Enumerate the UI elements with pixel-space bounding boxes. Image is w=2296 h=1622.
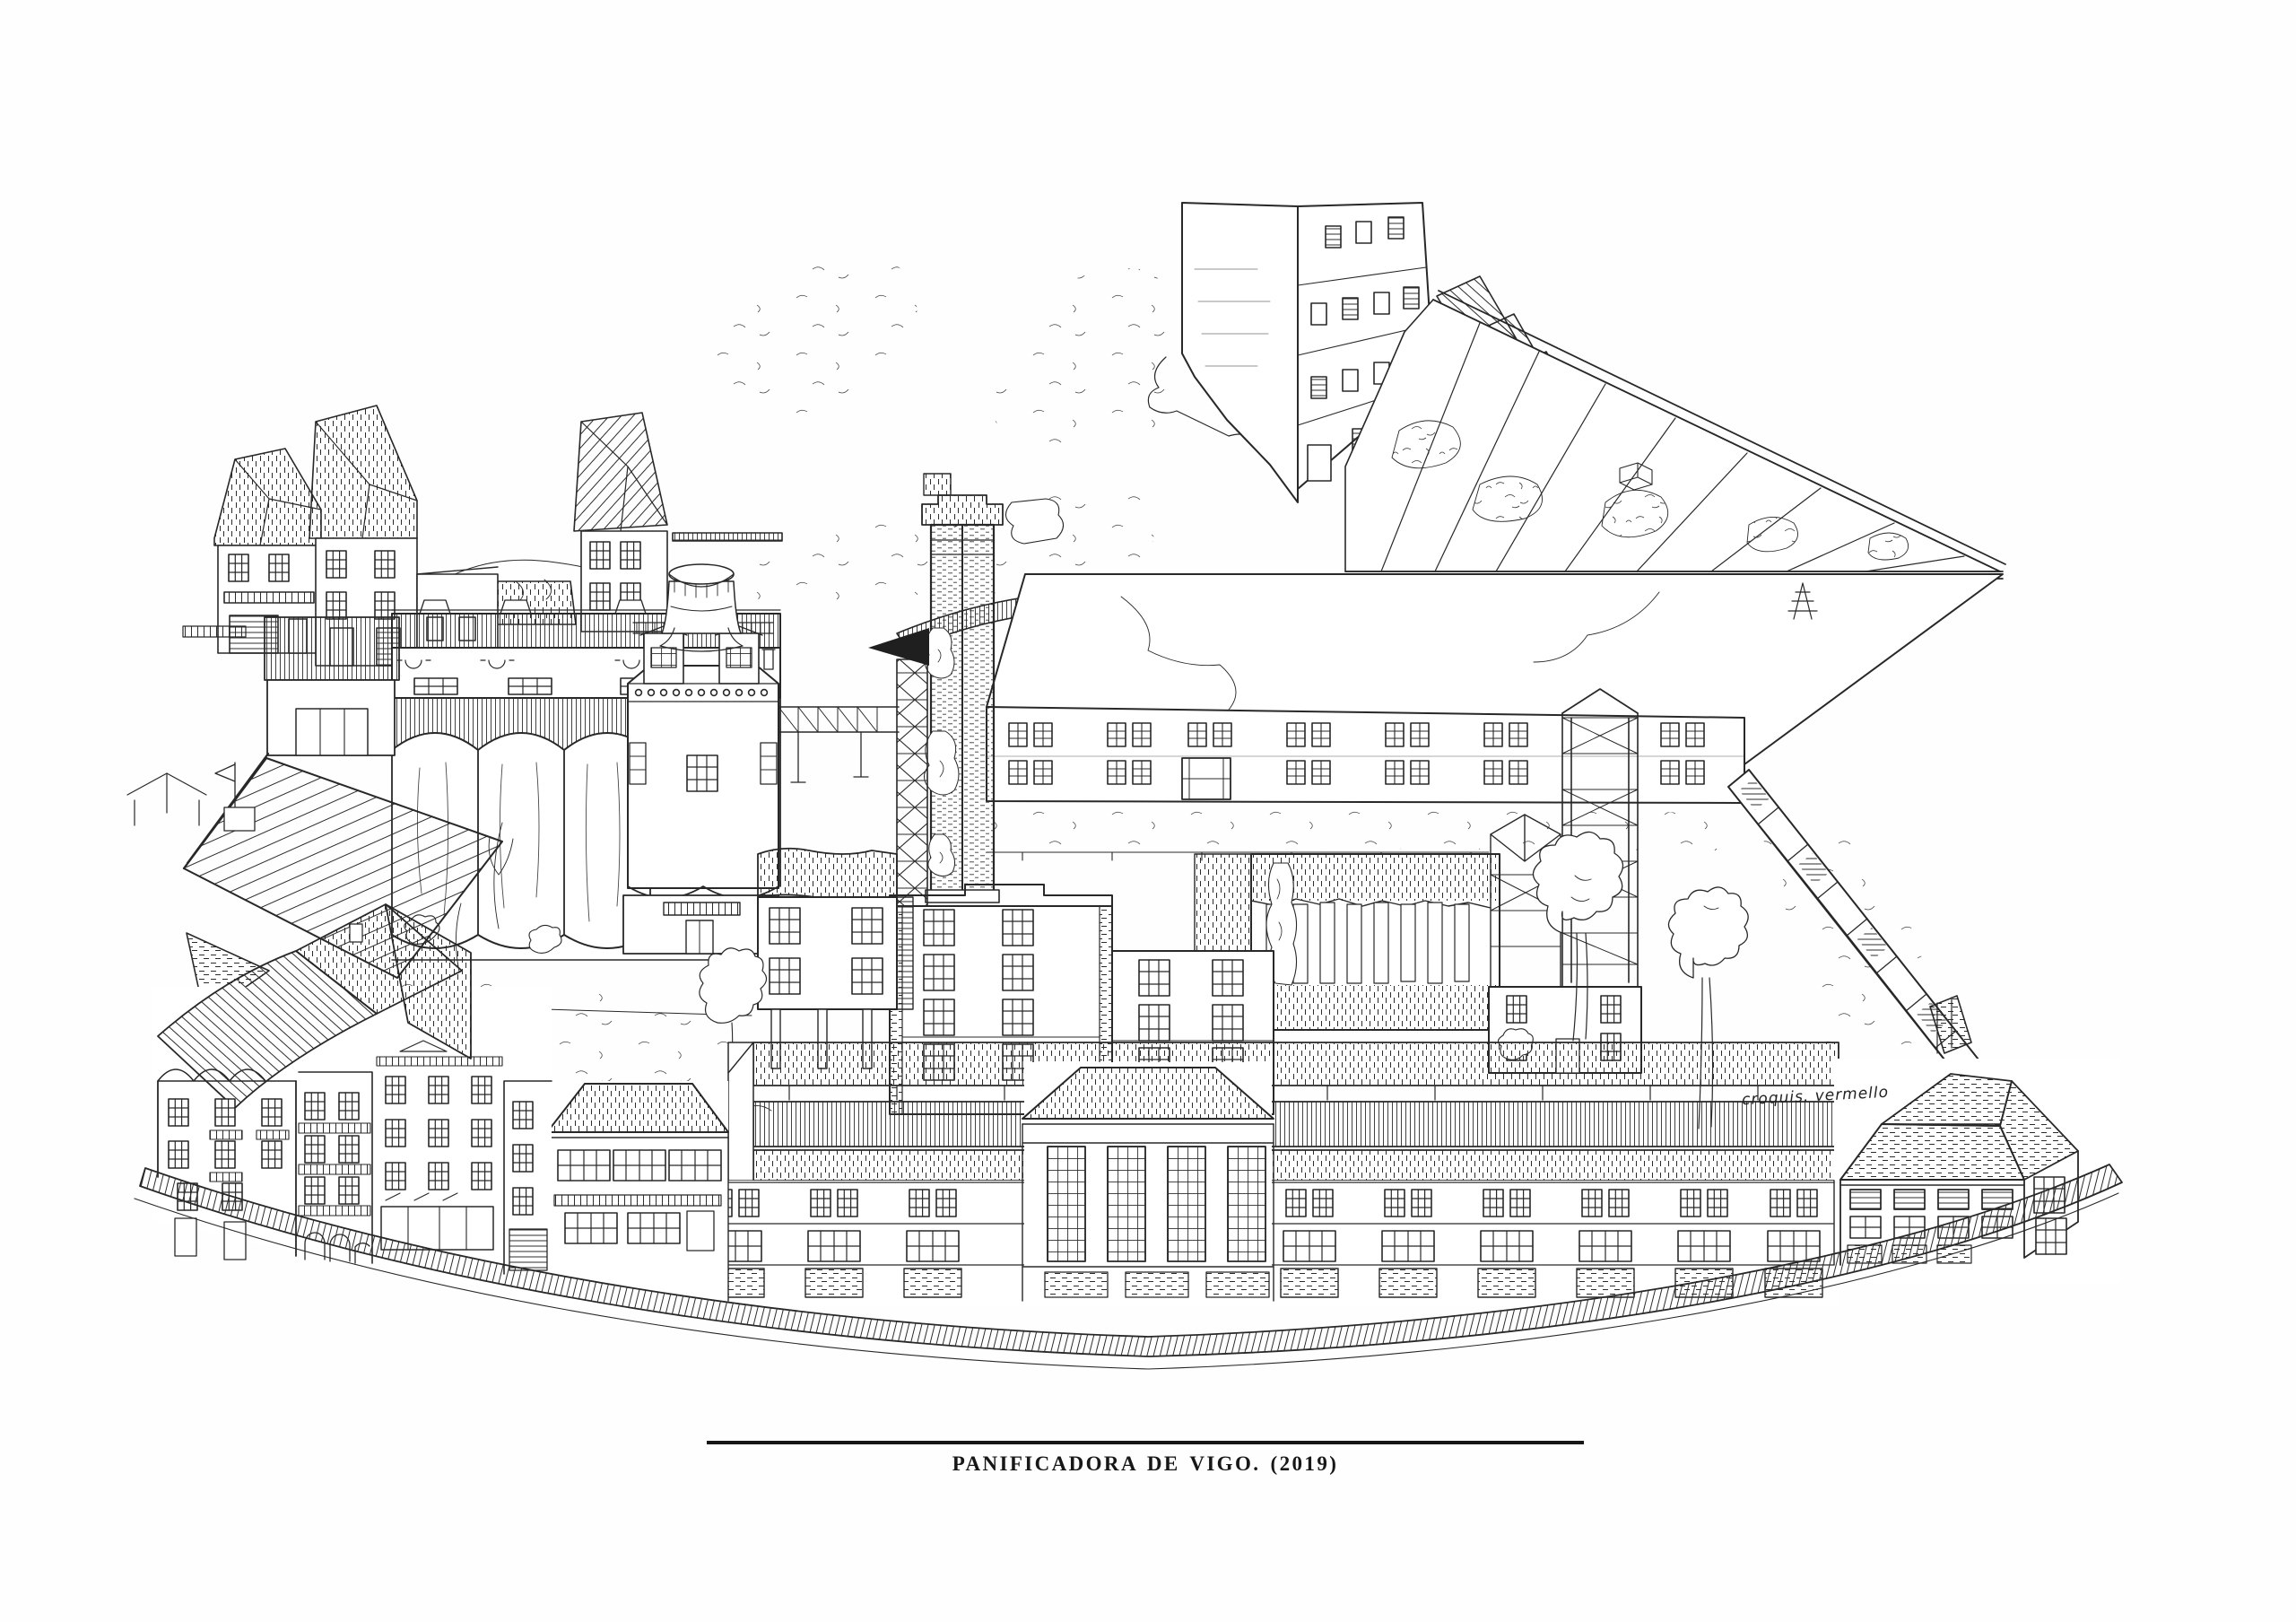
brick-chimney-tower — [922, 474, 1003, 903]
conveyor-bridge — [778, 707, 899, 782]
caption-text: PANIFICADORA DE VIGO. (2019) — [952, 1452, 1339, 1476]
drawing-plate: PANIFICADORA DE VIGO. (2019) croquis. ve… — [0, 0, 2296, 1622]
caption-block: PANIFICADORA DE VIGO. (2019) — [707, 1441, 1584, 1476]
terraced-gardens — [1345, 291, 2005, 579]
octagonal-tower — [623, 564, 778, 954]
side-pavilion — [547, 1081, 728, 1301]
central-pavilion — [1022, 1062, 1274, 1301]
ink-drawing — [0, 0, 2296, 1622]
middle-shed-roofs — [728, 1042, 1839, 1181]
